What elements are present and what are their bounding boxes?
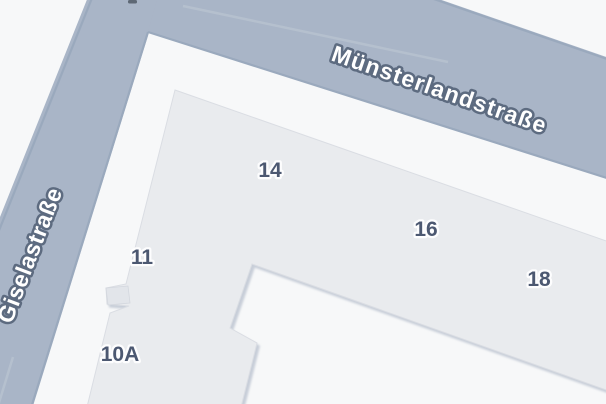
house-number-10A[interactable]: 10A [101, 343, 140, 366]
truncated-map-label [128, 0, 137, 4]
house-number-18[interactable]: 18 [527, 268, 551, 291]
house-number-16[interactable]: 16 [414, 218, 437, 241]
house-number-11[interactable]: 11 [131, 246, 154, 269]
map-canvas[interactable]: Münsterlandstraße Giselastraße 14 16 18 … [0, 0, 606, 404]
house-number-14[interactable]: 14 [258, 159, 282, 182]
building-annex[interactable] [106, 286, 130, 305]
map-frame: Münsterlandstraße Giselastraße 14 16 18 … [0, 0, 606, 404]
